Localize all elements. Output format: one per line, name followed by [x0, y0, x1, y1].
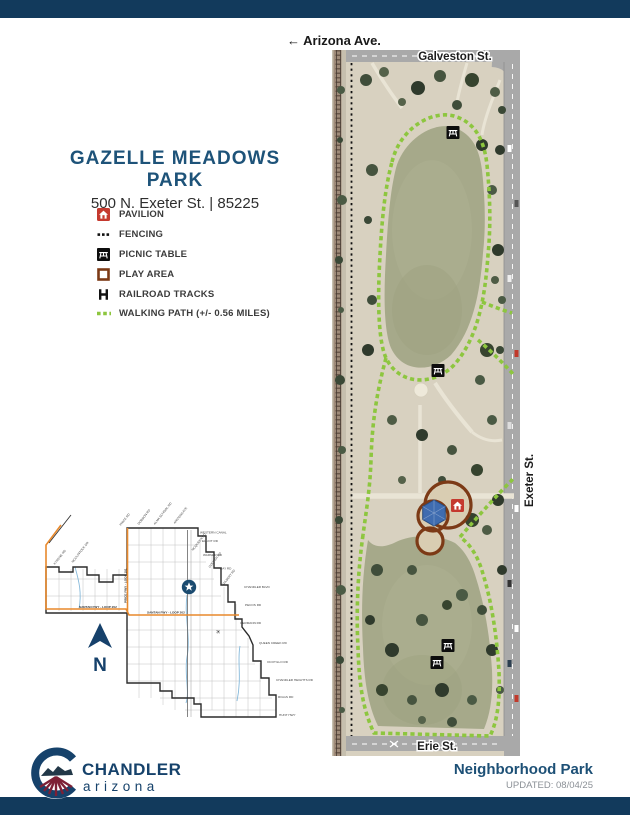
airport-icon: ✈ [214, 628, 223, 637]
street-label: RIGGS RD [278, 695, 294, 699]
erie-street-label: Erie St. [417, 741, 457, 753]
inset-rotated-labels: KYRENE RD MCCLINTOCK DR PRICE RD DOBSON … [53, 501, 237, 586]
park-location-star [182, 580, 196, 594]
street-label: HUNT HWY [279, 713, 296, 717]
chandler-logo: CHANDLER arizona [28, 746, 198, 804]
arizona-ave-label: ← Arizona Ave. [287, 33, 381, 48]
street-label: ELLIOT RD [202, 539, 219, 543]
street-label: GERMANN RD [240, 621, 262, 625]
street-label: QUEEN CREEK RD [259, 641, 288, 645]
legend-label-picnic-table: PICNIC TABLE [119, 249, 187, 260]
price-fwy-label: PRICE FWY - LOOP 101 [123, 568, 127, 603]
legend-item-fencing: FENCING [96, 225, 270, 245]
street-label: CHANDLER HEIGHTS RD [276, 678, 314, 682]
chandler-city-map: SANTAN FWY - LOOP 202 SANTAN FWY - LOOP … [35, 505, 300, 733]
logo-state-text: arizona [83, 779, 159, 794]
santan-fwy-label-west: SANTAN FWY - LOOP 202 [79, 605, 117, 609]
street-label: PECOS RD [245, 603, 262, 607]
park-aerial-map: Galveston St. Erie St. Exeter St. [332, 50, 545, 756]
legend-label-walking-path: WALKING PATH (+/- 0.56 MILES) [119, 308, 270, 319]
street-label: GILBERT RD [222, 568, 237, 586]
legend: PAVILION FENCING PICNIC TABLE PLAY AREA … [96, 205, 270, 324]
park-map-page: GAZELLE MEADOWS PARK 500 N. Exeter St. |… [0, 0, 630, 815]
santan-fwy-label-east: SANTAN FWY - LOOP 202 [147, 611, 185, 615]
exeter-road [504, 50, 520, 756]
legend-item-play-area: PLAY AREA [96, 264, 270, 284]
ballfield-circle [414, 383, 428, 397]
pavilion-map-icon [451, 499, 464, 512]
walking-path-icon [96, 307, 111, 321]
north-arrow: N [88, 623, 112, 676]
railroad-tracks-icon [96, 287, 111, 301]
updated-label: UPDATED: 08/04/25 [454, 780, 593, 791]
picnic-table-icon [447, 126, 460, 139]
street-label: ARIZONA AVE [173, 506, 189, 524]
logo-city-text: CHANDLER [82, 760, 181, 779]
legend-label-play-area: PLAY AREA [119, 269, 174, 280]
picnic-table-icon [431, 656, 444, 669]
legend-item-walking-path: WALKING PATH (+/- 0.56 MILES) [96, 304, 270, 324]
picnic-table-icon [432, 364, 445, 377]
legend-label-pavilion: PAVILION [119, 209, 164, 220]
legend-label-fencing: FENCING [119, 229, 163, 240]
railroad-diagonal [49, 515, 71, 543]
picnic-table-icon [96, 247, 111, 261]
title-block: GAZELLE MEADOWS PARK 500 N. Exeter St. |… [40, 148, 310, 212]
galveston-street-label: Galveston St. [418, 51, 492, 63]
top-bar [0, 0, 630, 18]
street-label: DOBSON RD [137, 508, 152, 526]
legend-item-railroad: RAILROAD TRACKS [96, 284, 270, 304]
park-type-label: Neighborhood Park [454, 761, 593, 778]
legend-item-pavilion: PAVILION [96, 205, 270, 225]
picnic-table-icon [442, 639, 455, 652]
street-label: MCCLINTOCK DR [71, 540, 90, 563]
street-label: PRICE RD [119, 512, 132, 527]
street-label: OCOTILLO RD [267, 660, 289, 664]
street-label: RAY RD [220, 567, 232, 571]
exeter-street-label: Exeter St. [524, 454, 536, 507]
fencing-icon [96, 228, 111, 242]
legend-label-railroad: RAILROAD TRACKS [119, 289, 214, 300]
play-area-icon [96, 267, 111, 281]
north-arrow-icon [88, 623, 112, 648]
page-title: GAZELLE MEADOWS PARK [40, 148, 310, 192]
legend-item-picnic-table: PICNIC TABLE [96, 245, 270, 265]
footer-info: Neighborhood Park UPDATED: 08/04/25 [454, 761, 593, 791]
street-label: KYRENE RD [53, 548, 68, 565]
street-label: CHANDLER BLVD [244, 585, 270, 589]
railroad-corridor [332, 50, 346, 756]
street-label: ALMA SCHOOL RD [153, 501, 173, 526]
north-label: N [93, 655, 107, 676]
pavilion-icon [96, 208, 111, 222]
